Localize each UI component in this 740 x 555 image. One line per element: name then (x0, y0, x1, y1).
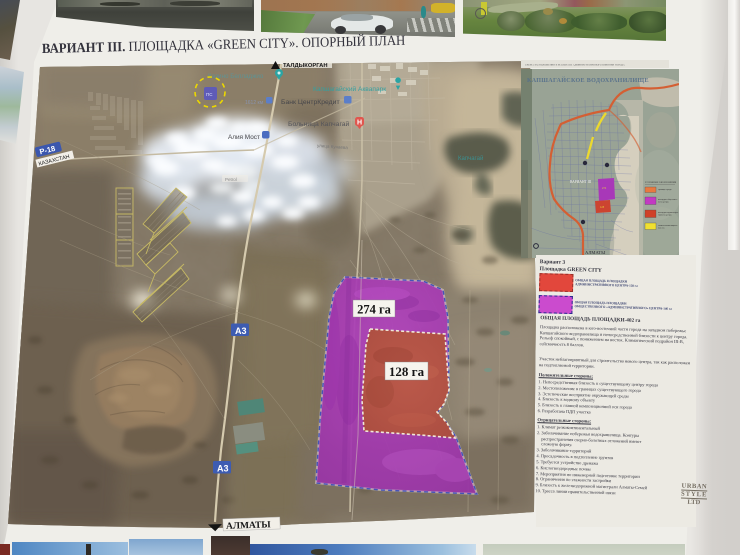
svg-text:128 га: 128 га (389, 364, 425, 379)
svg-text:СХЕМА РАСПОЛОЖЕНИЯ В МАСШТАБЕ: СХЕМА РАСПОЛОЖЕНИЯ В МАСШТАБЕ АДМИНИСТРА… (525, 64, 625, 67)
svg-text:ного центра: ного центра (658, 202, 669, 204)
svg-text:ПС: ПС (206, 92, 213, 97)
svg-text:128: 128 (600, 206, 605, 209)
svg-text:Банк ЦентрКредит: Банк ЦентрКредит (281, 99, 340, 106)
svg-text:274: 274 (602, 187, 607, 190)
svg-text:ВАРИАНТ III: ВАРИАНТ III (570, 180, 592, 184)
svg-text:УСЛОВНЫЕ ОБОЗНАЧЕНИЯ: УСЛОВНЫЕ ОБОЗНАЧЕНИЯ (645, 181, 677, 184)
svg-text:Больница Капчагай: Больница Капчагай (288, 120, 350, 128)
svg-text:1612 км: 1612 км (245, 100, 264, 106)
svg-text:АЛМАТЫ: АЛМАТЫ (226, 520, 272, 532)
svg-text:274 га: 274 га (357, 303, 392, 317)
svg-text:Капчагай: Капчагай (458, 155, 483, 162)
svg-text:А3: А3 (217, 463, 229, 473)
svg-text:Petrol: Petrol (225, 177, 237, 182)
svg-text:А3: А3 (235, 326, 247, 336)
svg-text:ная ось: ная ось (658, 228, 665, 230)
svg-text:Алия Мост: Алия Мост (228, 134, 260, 141)
svg-text:КАПШАГАЙСКОЕ ВОДОХРАНИЛИЩЕ: КАПШАГАЙСКОЕ ВОДОХРАНИЛИЩЕ (527, 76, 649, 84)
svg-text:граница города: граница города (658, 189, 672, 191)
svg-text:Капшагайский Аквапарк: Капшагайский Аквапарк (313, 85, 386, 93)
svg-text:тивного центра: тивного центра (658, 215, 672, 217)
svg-text:ТАЛДЫКОРГАН: ТАЛДЫКОРГАН (283, 63, 328, 69)
svg-text:площадка обществен-: площадка обществен- (658, 198, 678, 201)
svg-text:H: H (357, 120, 362, 127)
